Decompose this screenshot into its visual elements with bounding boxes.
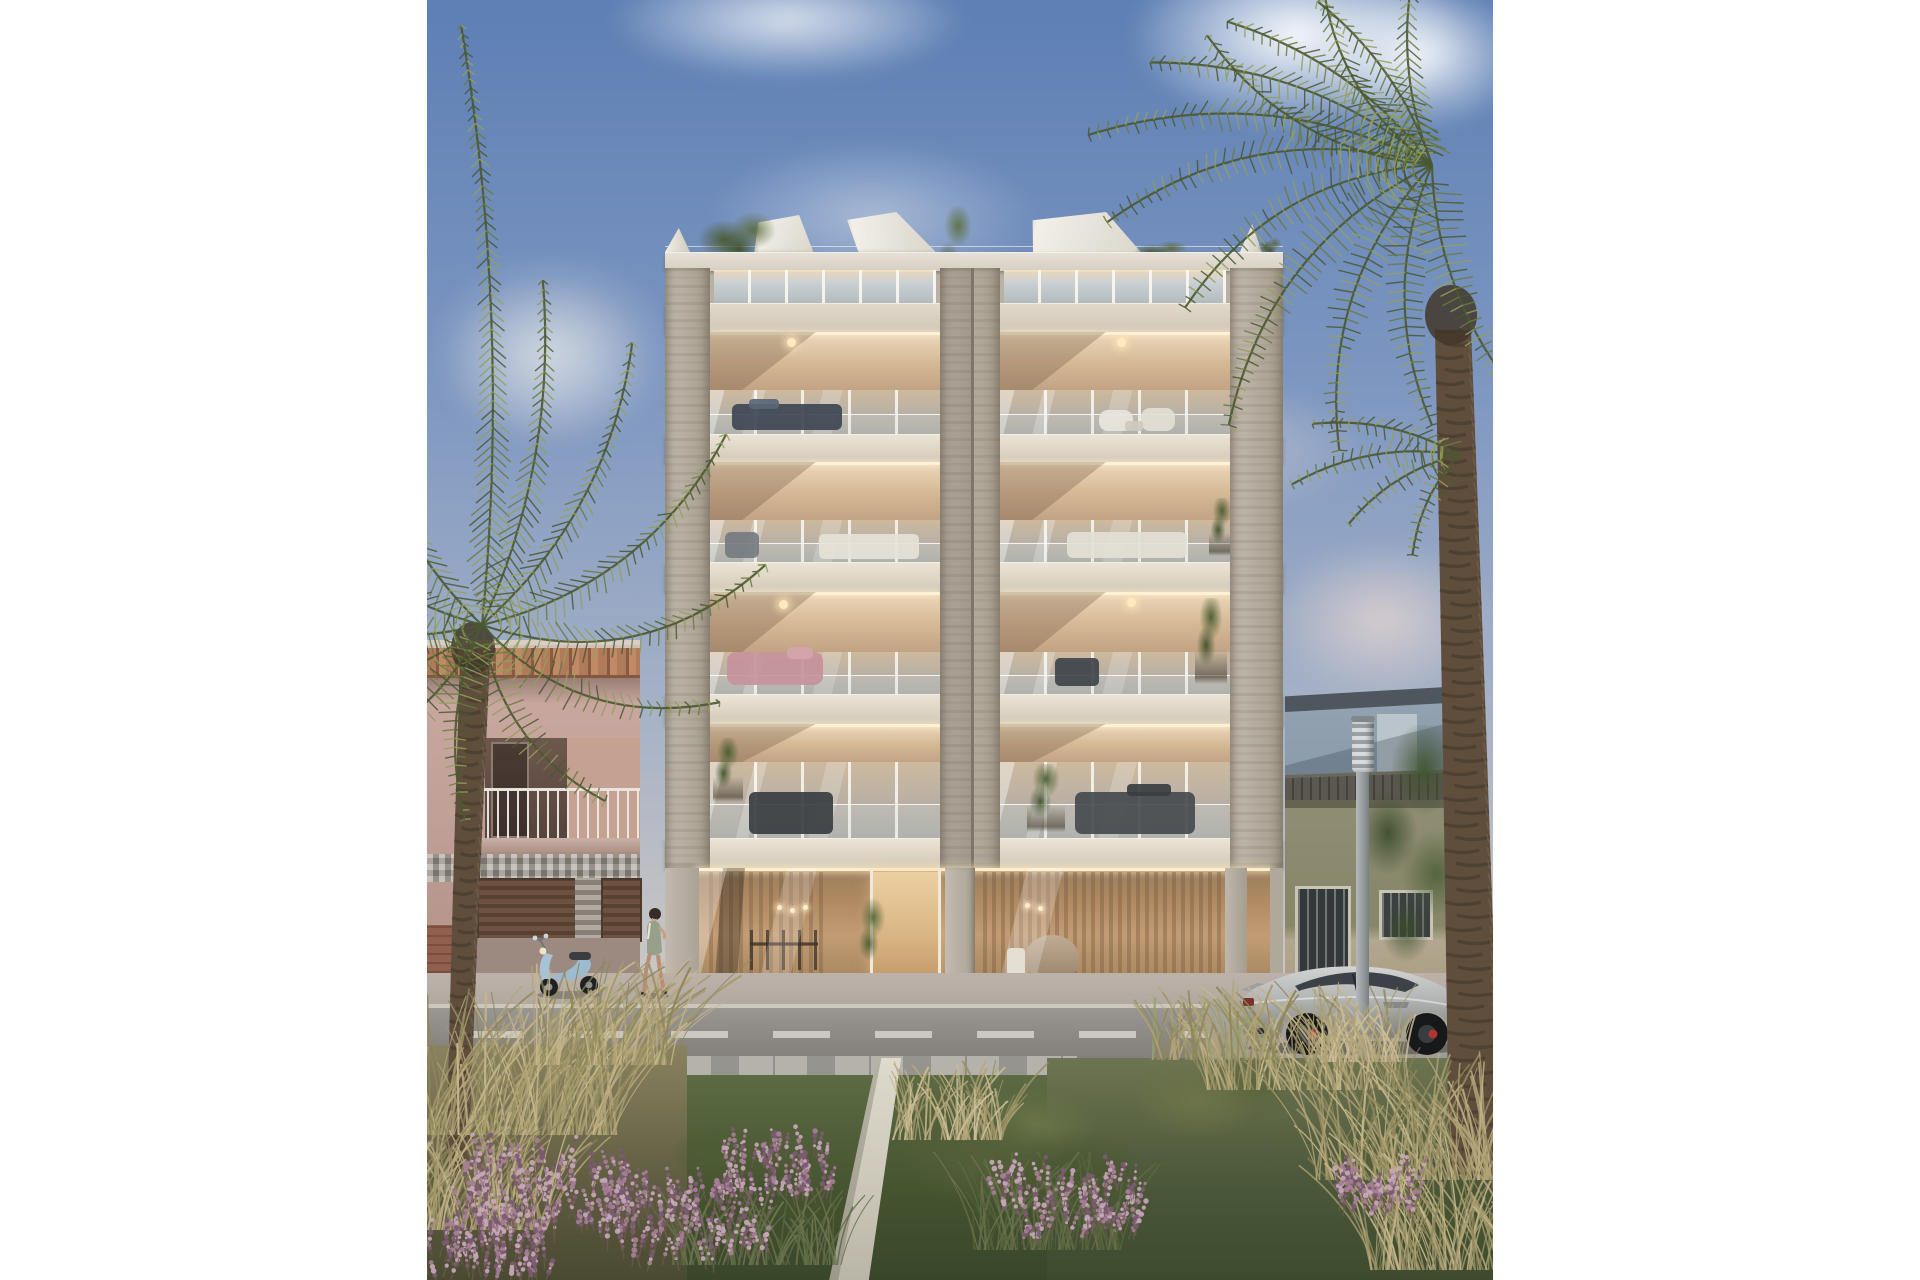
architectural-rendering bbox=[427, 0, 1493, 1280]
vegetation bbox=[427, 0, 1493, 1280]
canvas bbox=[0, 0, 1920, 1280]
front-vegetation bbox=[427, 957, 1493, 1280]
